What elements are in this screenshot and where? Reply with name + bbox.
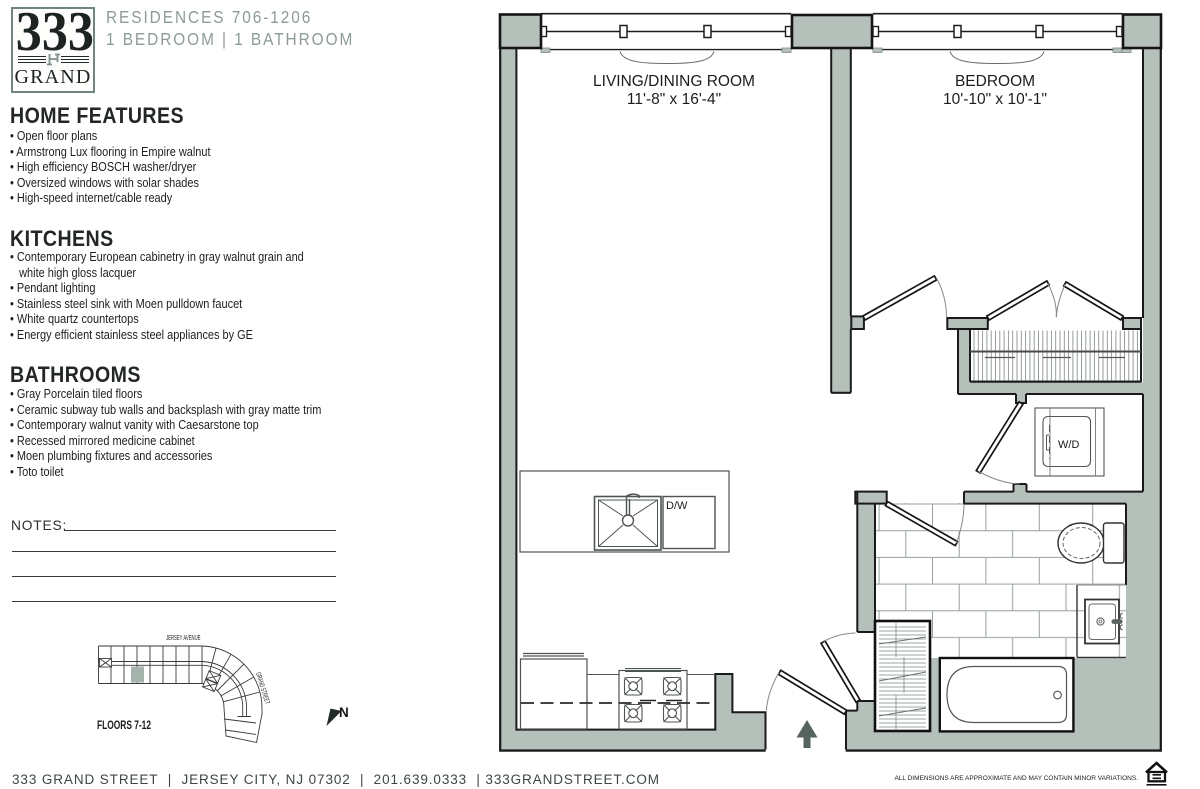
svg-text:GRAND STREET: GRAND STREET (254, 672, 270, 706)
svg-text:D/W: D/W (666, 500, 688, 512)
svg-text:BEDROOM: BEDROOM (955, 73, 1035, 90)
svg-text:FLOORS 7-12: FLOORS 7-12 (97, 718, 151, 732)
svg-text:11'-8" x 16'-4": 11'-8" x 16'-4" (627, 91, 721, 108)
svg-text:LIVING/DINING ROOM: LIVING/DINING ROOM (593, 73, 755, 90)
svg-text:N: N (339, 705, 349, 720)
svg-text:W/D: W/D (1058, 439, 1079, 451)
svg-text:10'-10" x 10'-1": 10'-10" x 10'-1" (943, 91, 1047, 108)
svg-text:JERSEY AVENUE: JERSEY AVENUE (166, 635, 201, 642)
